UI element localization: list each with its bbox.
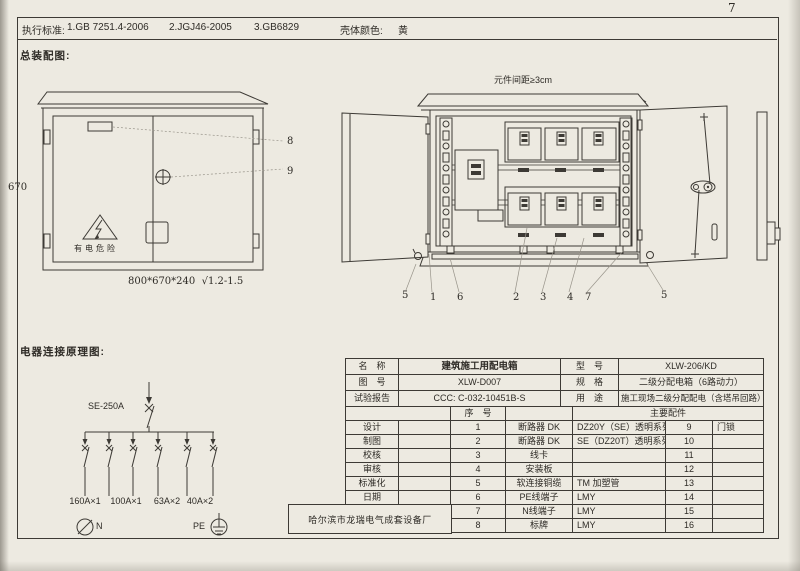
standards-label: 执行标准: — [22, 22, 65, 37]
part-name: PE线端子 — [506, 491, 573, 505]
branch-label-2: 100A×1 — [105, 496, 147, 506]
part-spec: LMY — [573, 505, 666, 519]
branch-label-1: 160A×1 — [64, 496, 106, 506]
part-name: N线端子 — [506, 505, 573, 519]
part-no: 1 — [451, 421, 506, 435]
standard-2: 2.JGJ46-2005 — [169, 22, 232, 33]
main-breaker-symbol — [145, 382, 154, 432]
hinge — [44, 130, 50, 144]
part-no: 3 — [451, 449, 506, 463]
scan-edge-bottom — [0, 561, 800, 571]
earth-symbol-icon — [211, 513, 227, 535]
part-name2 — [713, 505, 764, 519]
sign-header-cell — [346, 407, 451, 421]
callout-9: 9 — [287, 166, 293, 177]
pe-label: PE — [193, 521, 205, 531]
callout-6: 6 — [457, 292, 463, 303]
assembly-section-title: 总装配图: — [20, 48, 71, 63]
usage-value: 施工现场二级分配配电（含塔吊回路） — [619, 391, 764, 407]
part-name: 线卡 — [506, 449, 573, 463]
height-dimension: 670 — [8, 182, 27, 193]
callout-1: 1 — [430, 292, 436, 303]
schematic-section-title: 电器连接原理图: — [20, 344, 105, 359]
callout-2: 2 — [513, 292, 519, 303]
part-no2: 11 — [666, 449, 713, 463]
part-spec: LMY — [573, 519, 666, 533]
test-report-value: CCC: C-032-10451B-S — [399, 391, 561, 407]
standard-1: 1.GB 7251.4-2006 — [67, 22, 149, 33]
part-name2 — [713, 463, 764, 477]
part-name: 标牌 — [506, 519, 573, 533]
shell-color-label: 壳体颜色: — [340, 22, 383, 37]
page-number: 7 — [728, 1, 736, 15]
neutral-symbol-icon — [77, 519, 93, 535]
callout-5-left: 5 — [402, 290, 408, 301]
sign-label-draft: 制图 — [346, 435, 399, 449]
company-name: 哈尔滨市龙瑞电气成套设备厂 — [288, 504, 452, 534]
size-note: 800*670*240 √1.2-1.5 — [128, 276, 243, 287]
part-no2: 13 — [666, 477, 713, 491]
right-open-door — [638, 106, 727, 263]
branch-breaker-symbols — [82, 432, 217, 496]
assembly-drawing — [0, 58, 800, 308]
part-name: 安装板 — [506, 463, 573, 477]
spec-label: 规 格 — [561, 375, 619, 391]
neutral-label: N — [96, 521, 103, 531]
part-no2: 10 — [666, 435, 713, 449]
part-name2 — [713, 519, 764, 533]
part-no: 6 — [451, 491, 506, 505]
test-report-label: 试验报告 — [346, 391, 399, 407]
part-no2: 12 — [666, 463, 713, 477]
side-panel-view — [757, 112, 780, 260]
name-value: 建筑施工用配电箱 — [399, 359, 561, 375]
parts-header: 主要配件 — [573, 407, 764, 421]
callout-4: 4 — [567, 292, 573, 303]
part-spec: DZ20Y（SE）透明系列 — [573, 421, 666, 435]
model-value: XLW-206/KD — [619, 359, 764, 375]
hinge — [44, 234, 50, 248]
sign-label-audit: 审核 — [346, 463, 399, 477]
part-name: 断路器 DK — [506, 435, 573, 449]
main-breaker — [455, 150, 503, 221]
part-no2: 15 — [666, 505, 713, 519]
part-no: 8 — [451, 519, 506, 533]
part-name2 — [713, 449, 764, 463]
callout-3: 3 — [540, 292, 546, 303]
hinge — [253, 130, 259, 144]
part-no2: 16 — [666, 519, 713, 533]
seq-header: 序 号 — [451, 407, 506, 421]
danger-label: 有电危险 — [74, 243, 118, 254]
seq-header-spacer — [506, 407, 573, 421]
part-spec — [573, 449, 666, 463]
part-name2 — [713, 491, 764, 505]
standard-3: 3.GB6829 — [254, 22, 299, 33]
standards-bar: 执行标准: 1.GB 7251.4-2006 2.JGJ46-2005 3.GB… — [17, 17, 777, 40]
spacing-note: 元件间距≥3cm — [494, 73, 552, 86]
name-label: 名 称 — [346, 359, 399, 375]
part-no: 4 — [451, 463, 506, 477]
open-box-view — [342, 94, 780, 292]
model-label: 型 号 — [561, 359, 619, 375]
left-open-door — [342, 113, 430, 262]
sign-label-check: 校核 — [346, 449, 399, 463]
part-name: 断路器 DK — [506, 421, 573, 435]
drawing-no-label: 图 号 — [346, 375, 399, 391]
sign-label-date: 日期 — [346, 491, 399, 505]
main-breaker-label: SE-250A — [88, 401, 124, 411]
drawing-no-value: XLW-D007 — [399, 375, 561, 391]
drawing-sheet: 7 执行标准: 1.GB 7251.4-2006 2.JGJ46-2005 3.… — [0, 0, 800, 571]
part-spec: LMY — [573, 491, 666, 505]
part-spec — [573, 463, 666, 477]
part-no2: 14 — [666, 491, 713, 505]
part-spec: SE（DZ20T）透明系列 — [573, 435, 666, 449]
spec-header-table: 名 称 建筑施工用配电箱 型 号 XLW-206/KD 图 号 XLW-D007… — [345, 358, 764, 407]
part-name: 软连接铜缆 — [506, 477, 573, 491]
hinge — [253, 234, 259, 248]
callout-5-right: 5 — [661, 290, 667, 301]
usage-label: 用 途 — [561, 391, 619, 407]
part-no2: 9 — [666, 421, 713, 435]
branch-label-4: 40A×2 — [181, 496, 219, 506]
part-no: 5 — [451, 477, 506, 491]
sign-label-design: 设计 — [346, 421, 399, 435]
part-no: 7 — [451, 505, 506, 519]
part-no: 2 — [451, 435, 506, 449]
part-name2 — [713, 435, 764, 449]
spec-value: 二级分配电箱（6路动力） — [619, 375, 764, 391]
shell-color-value: 黄 — [398, 22, 408, 37]
part-name2: 门锁 — [713, 421, 764, 435]
part-name2 — [713, 477, 764, 491]
sign-label-standardize: 标准化 — [346, 477, 399, 491]
callout-7: 7 — [585, 292, 591, 303]
part-spec: TM 加塑管 — [573, 477, 666, 491]
callout-8: 8 — [287, 136, 293, 147]
